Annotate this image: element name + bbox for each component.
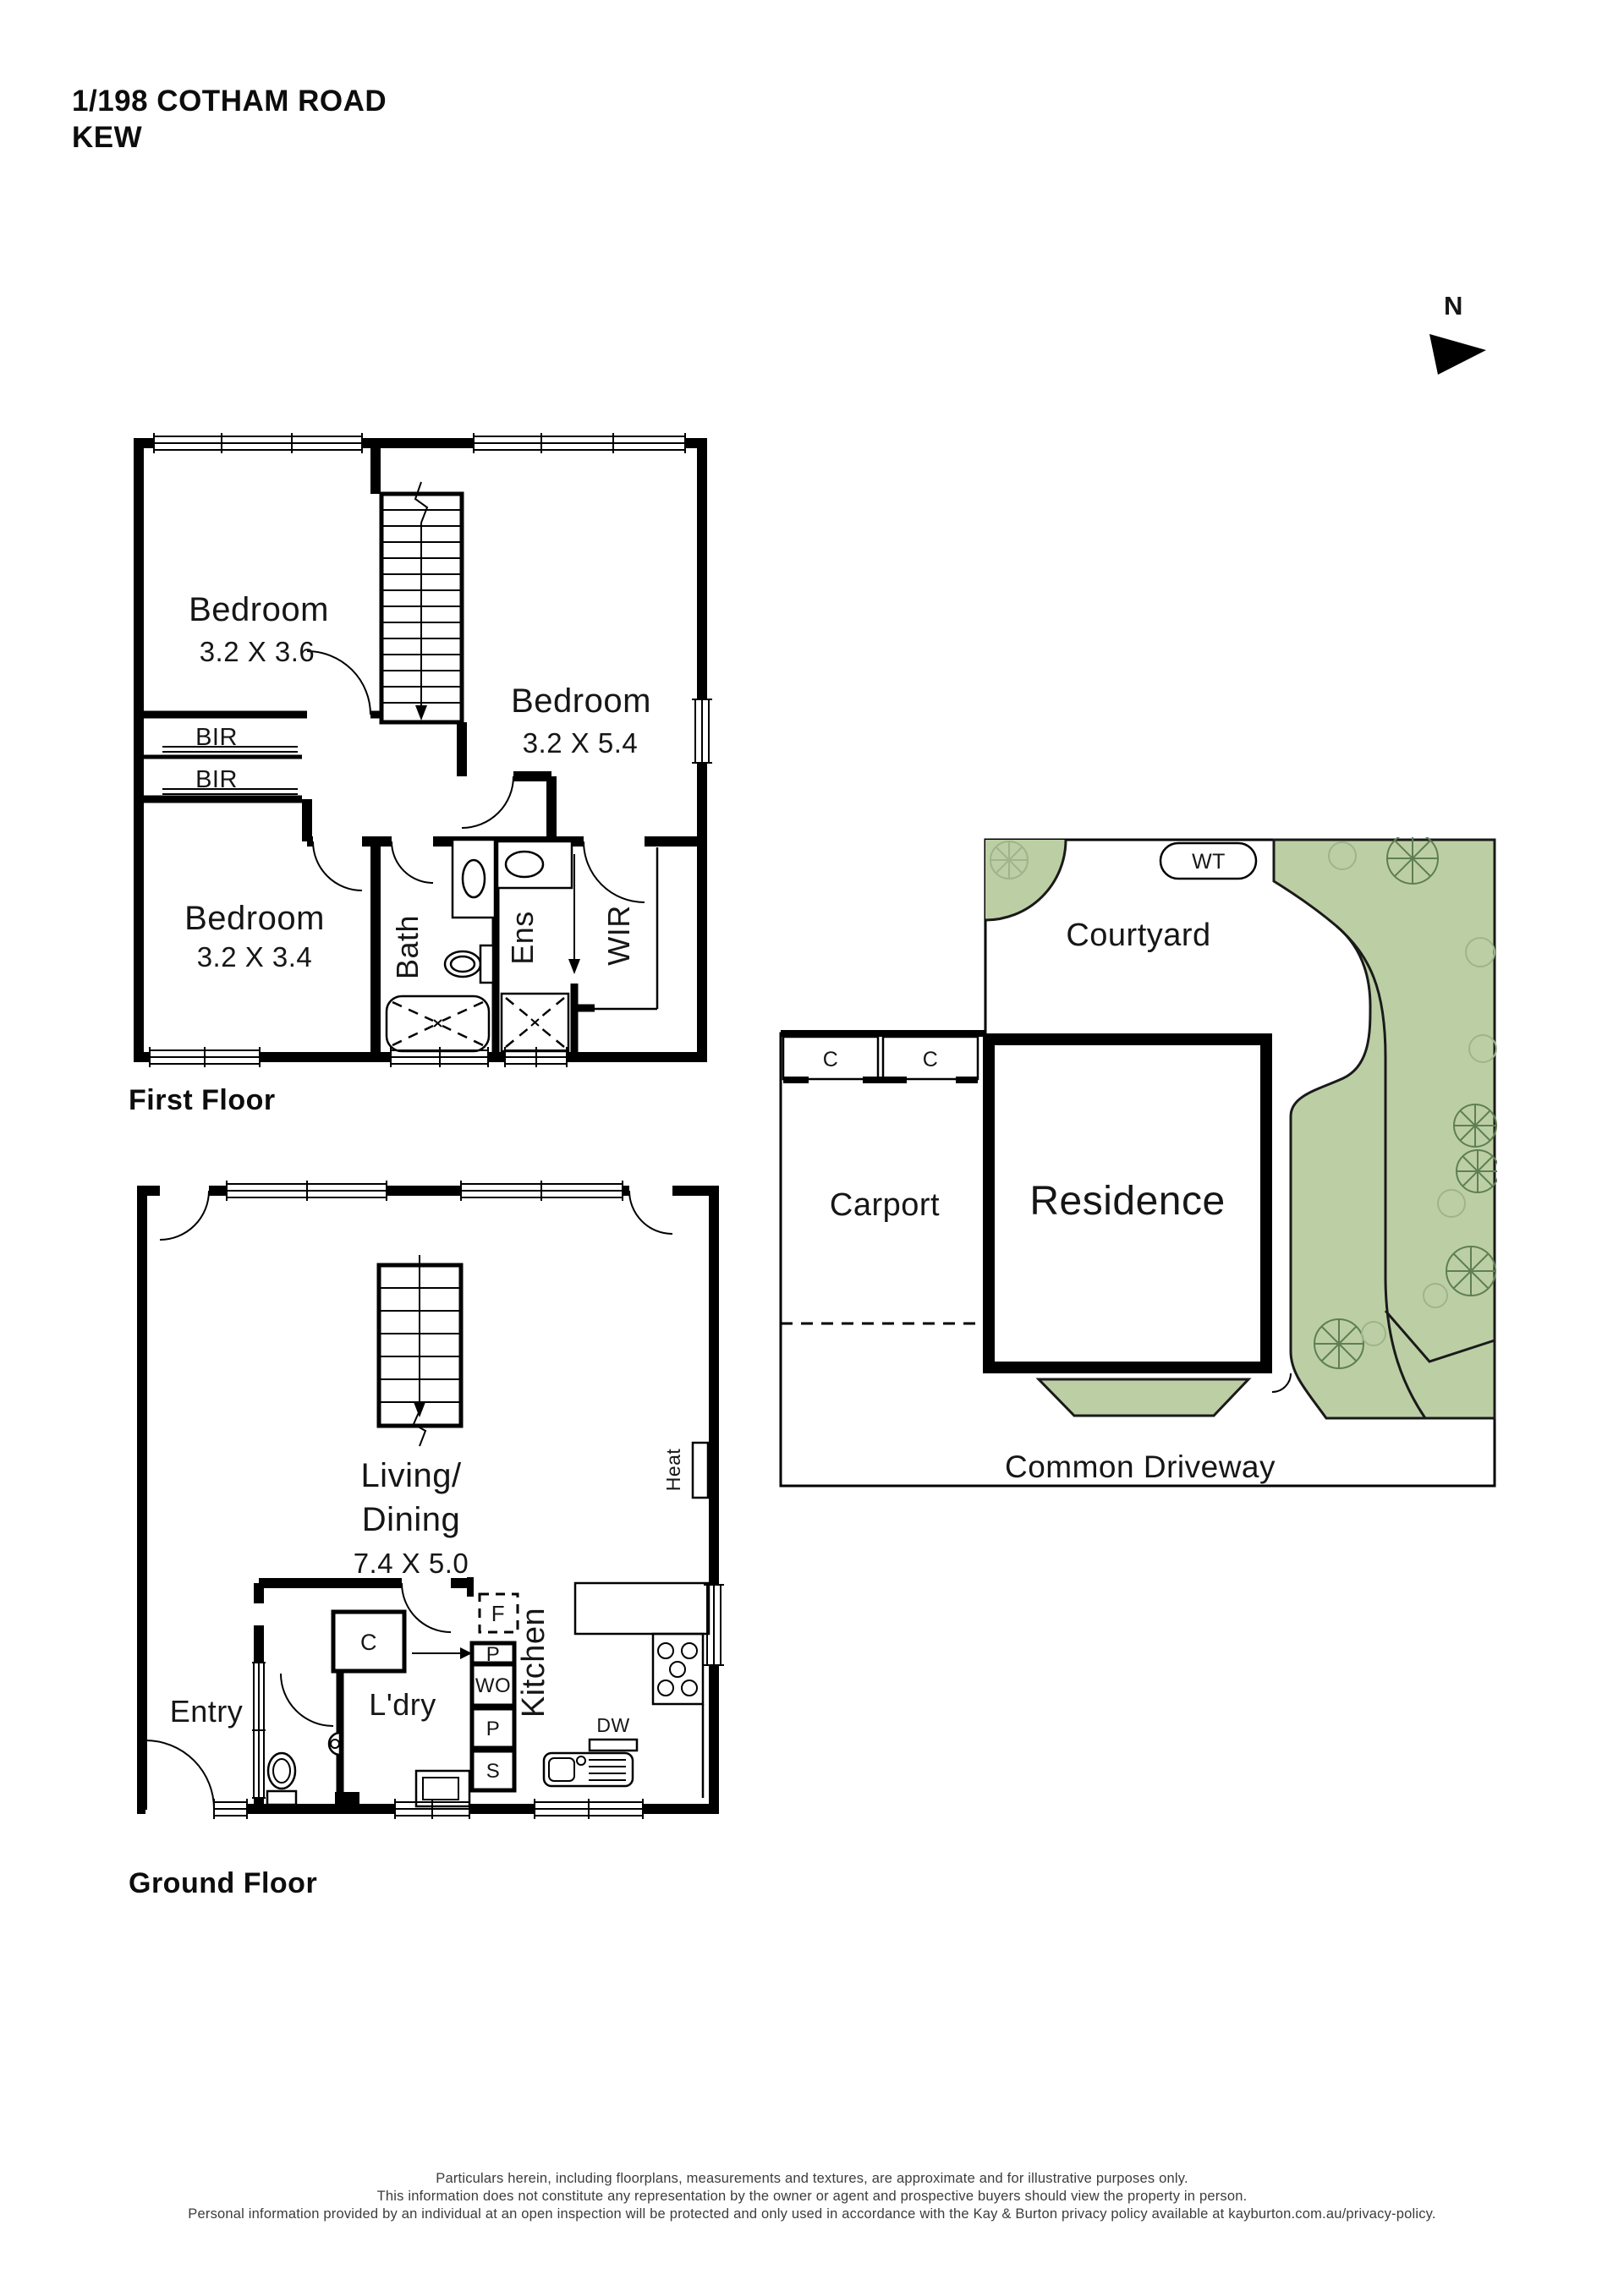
- ensuite-vanity: [497, 841, 572, 888]
- entry-label: Entry: [170, 1694, 244, 1729]
- bir2-label: BIR: [195, 766, 238, 793]
- bedroom3-dims: 3.2 X 3.4: [197, 941, 313, 973]
- heater: Heat: [662, 1443, 708, 1498]
- laundry-closet-label: C: [360, 1630, 377, 1655]
- ensuite-label: Ens: [505, 911, 540, 965]
- first-floor-plan: Bedroom 3.2 X 3.6 Bedroom 3.2 X 5.4 Bedr…: [129, 433, 712, 1067]
- water-tank: WT: [1160, 843, 1256, 879]
- kitchen-fixtures: DW: [544, 1583, 709, 1798]
- north-label: N: [1444, 291, 1463, 321]
- staircase: [379, 1255, 461, 1446]
- disclaimer-line-2: This information does not constitute any…: [0, 2188, 1624, 2206]
- toilet: [445, 945, 493, 983]
- kitchen-label: Kitchen: [516, 1608, 551, 1718]
- page-title: 1/198 COTHAM ROAD KEW: [72, 83, 387, 156]
- floor-plan-document: 1/198 COTHAM ROAD KEW N: [0, 0, 1624, 2296]
- living-label-line1: Living/: [360, 1457, 462, 1494]
- fridge-label: F: [491, 1601, 505, 1626]
- bath-vanity: [453, 840, 495, 918]
- residence-label: Residence: [1029, 1179, 1225, 1224]
- address-line-2: KEW: [72, 119, 387, 156]
- kitchen-bench: [575, 1583, 709, 1634]
- disclaimer-line-3: Personal information provided by an indi…: [0, 2206, 1624, 2223]
- hand-basin: [329, 1733, 340, 1755]
- laundry-label: L'dry: [369, 1687, 436, 1722]
- courtyard-label: Courtyard: [1066, 918, 1210, 953]
- address-line-1: 1/198 COTHAM ROAD: [72, 83, 387, 119]
- site-plan: WT C C Courtyard Carport Residence Commo…: [778, 837, 1497, 1488]
- residence-rear-door-arc: [1272, 1373, 1291, 1392]
- north-triangle-icon: [1429, 334, 1486, 375]
- living-dims: 7.4 X 5.0: [354, 1548, 469, 1579]
- window: [704, 1585, 724, 1665]
- bedroom2-label: Bedroom: [511, 682, 651, 720]
- bedroom1-dims: 3.2 X 3.6: [200, 636, 315, 667]
- ground-floor-plan: Heat F P WO P S: [132, 1181, 724, 1819]
- pantry-lower-label: P: [486, 1718, 501, 1740]
- bedroom1-label: Bedroom: [189, 591, 329, 628]
- sink-label: S: [486, 1760, 501, 1783]
- shower: [502, 994, 568, 1051]
- living-label-line2: Dining: [362, 1501, 460, 1538]
- duct: [335, 1792, 359, 1809]
- bir1-label: BIR: [195, 724, 238, 751]
- north-arrow-icon: N: [1396, 279, 1514, 389]
- garden-bed-south: [1039, 1379, 1248, 1416]
- pantry-arrow: [412, 1647, 472, 1659]
- internal-window: [252, 1663, 266, 1798]
- bedroom2-dims: 3.2 X 5.4: [523, 727, 639, 759]
- bathtub: [387, 996, 489, 1051]
- storage2-label: C: [923, 1048, 939, 1071]
- dishwasher-label: DW: [596, 1714, 629, 1736]
- staircase: [381, 482, 462, 722]
- cooktop: [653, 1634, 703, 1704]
- heat-label: Heat: [662, 1449, 684, 1492]
- bath-label: Bath: [390, 915, 425, 979]
- bedroom3-label: Bedroom: [184, 900, 325, 937]
- wall-oven-label: WO: [475, 1674, 511, 1697]
- common-driveway-label: Common Driveway: [1005, 1449, 1276, 1484]
- storage-closets: C C: [781, 1033, 985, 1080]
- water-tank-label: WT: [1192, 850, 1226, 874]
- pantry-upper-label: P: [486, 1643, 501, 1666]
- disclaimer-line-1: Particulars herein, including floorplans…: [0, 2170, 1624, 2188]
- toilet: [267, 1753, 296, 1805]
- dishwasher: [590, 1740, 637, 1751]
- storage1-label: C: [823, 1048, 839, 1071]
- carport-label: Carport: [830, 1187, 940, 1223]
- ground-floor-title: Ground Floor: [129, 1867, 317, 1900]
- disclaimer: Particulars herein, including floorplans…: [0, 2170, 1624, 2223]
- window: [692, 699, 712, 763]
- kitchen-sink: [544, 1753, 633, 1786]
- first-floor-title: First Floor: [129, 1084, 276, 1117]
- wir-label: WIR: [601, 905, 636, 965]
